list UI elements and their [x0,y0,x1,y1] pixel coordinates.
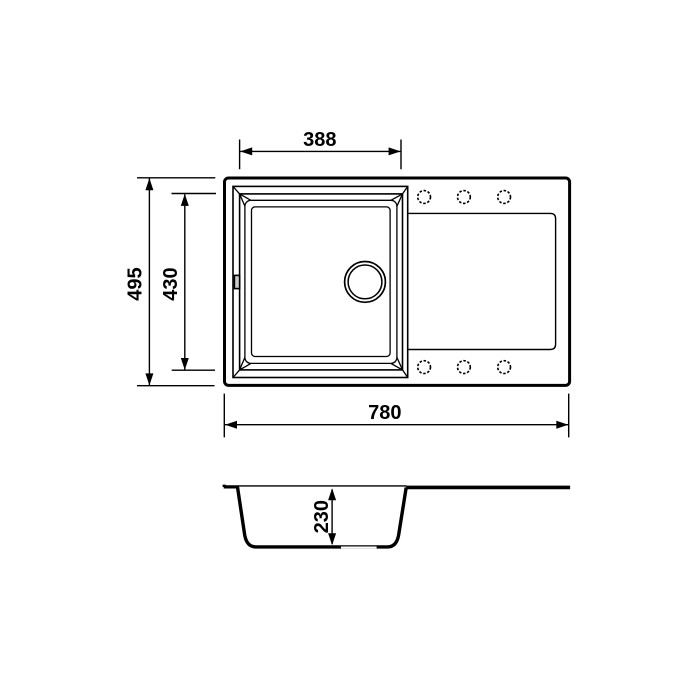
svg-text:388: 388 [303,129,336,151]
svg-text:780: 780 [368,402,401,424]
svg-text:230: 230 [311,500,333,533]
svg-text:495: 495 [124,267,146,300]
svg-text:430: 430 [160,267,182,300]
